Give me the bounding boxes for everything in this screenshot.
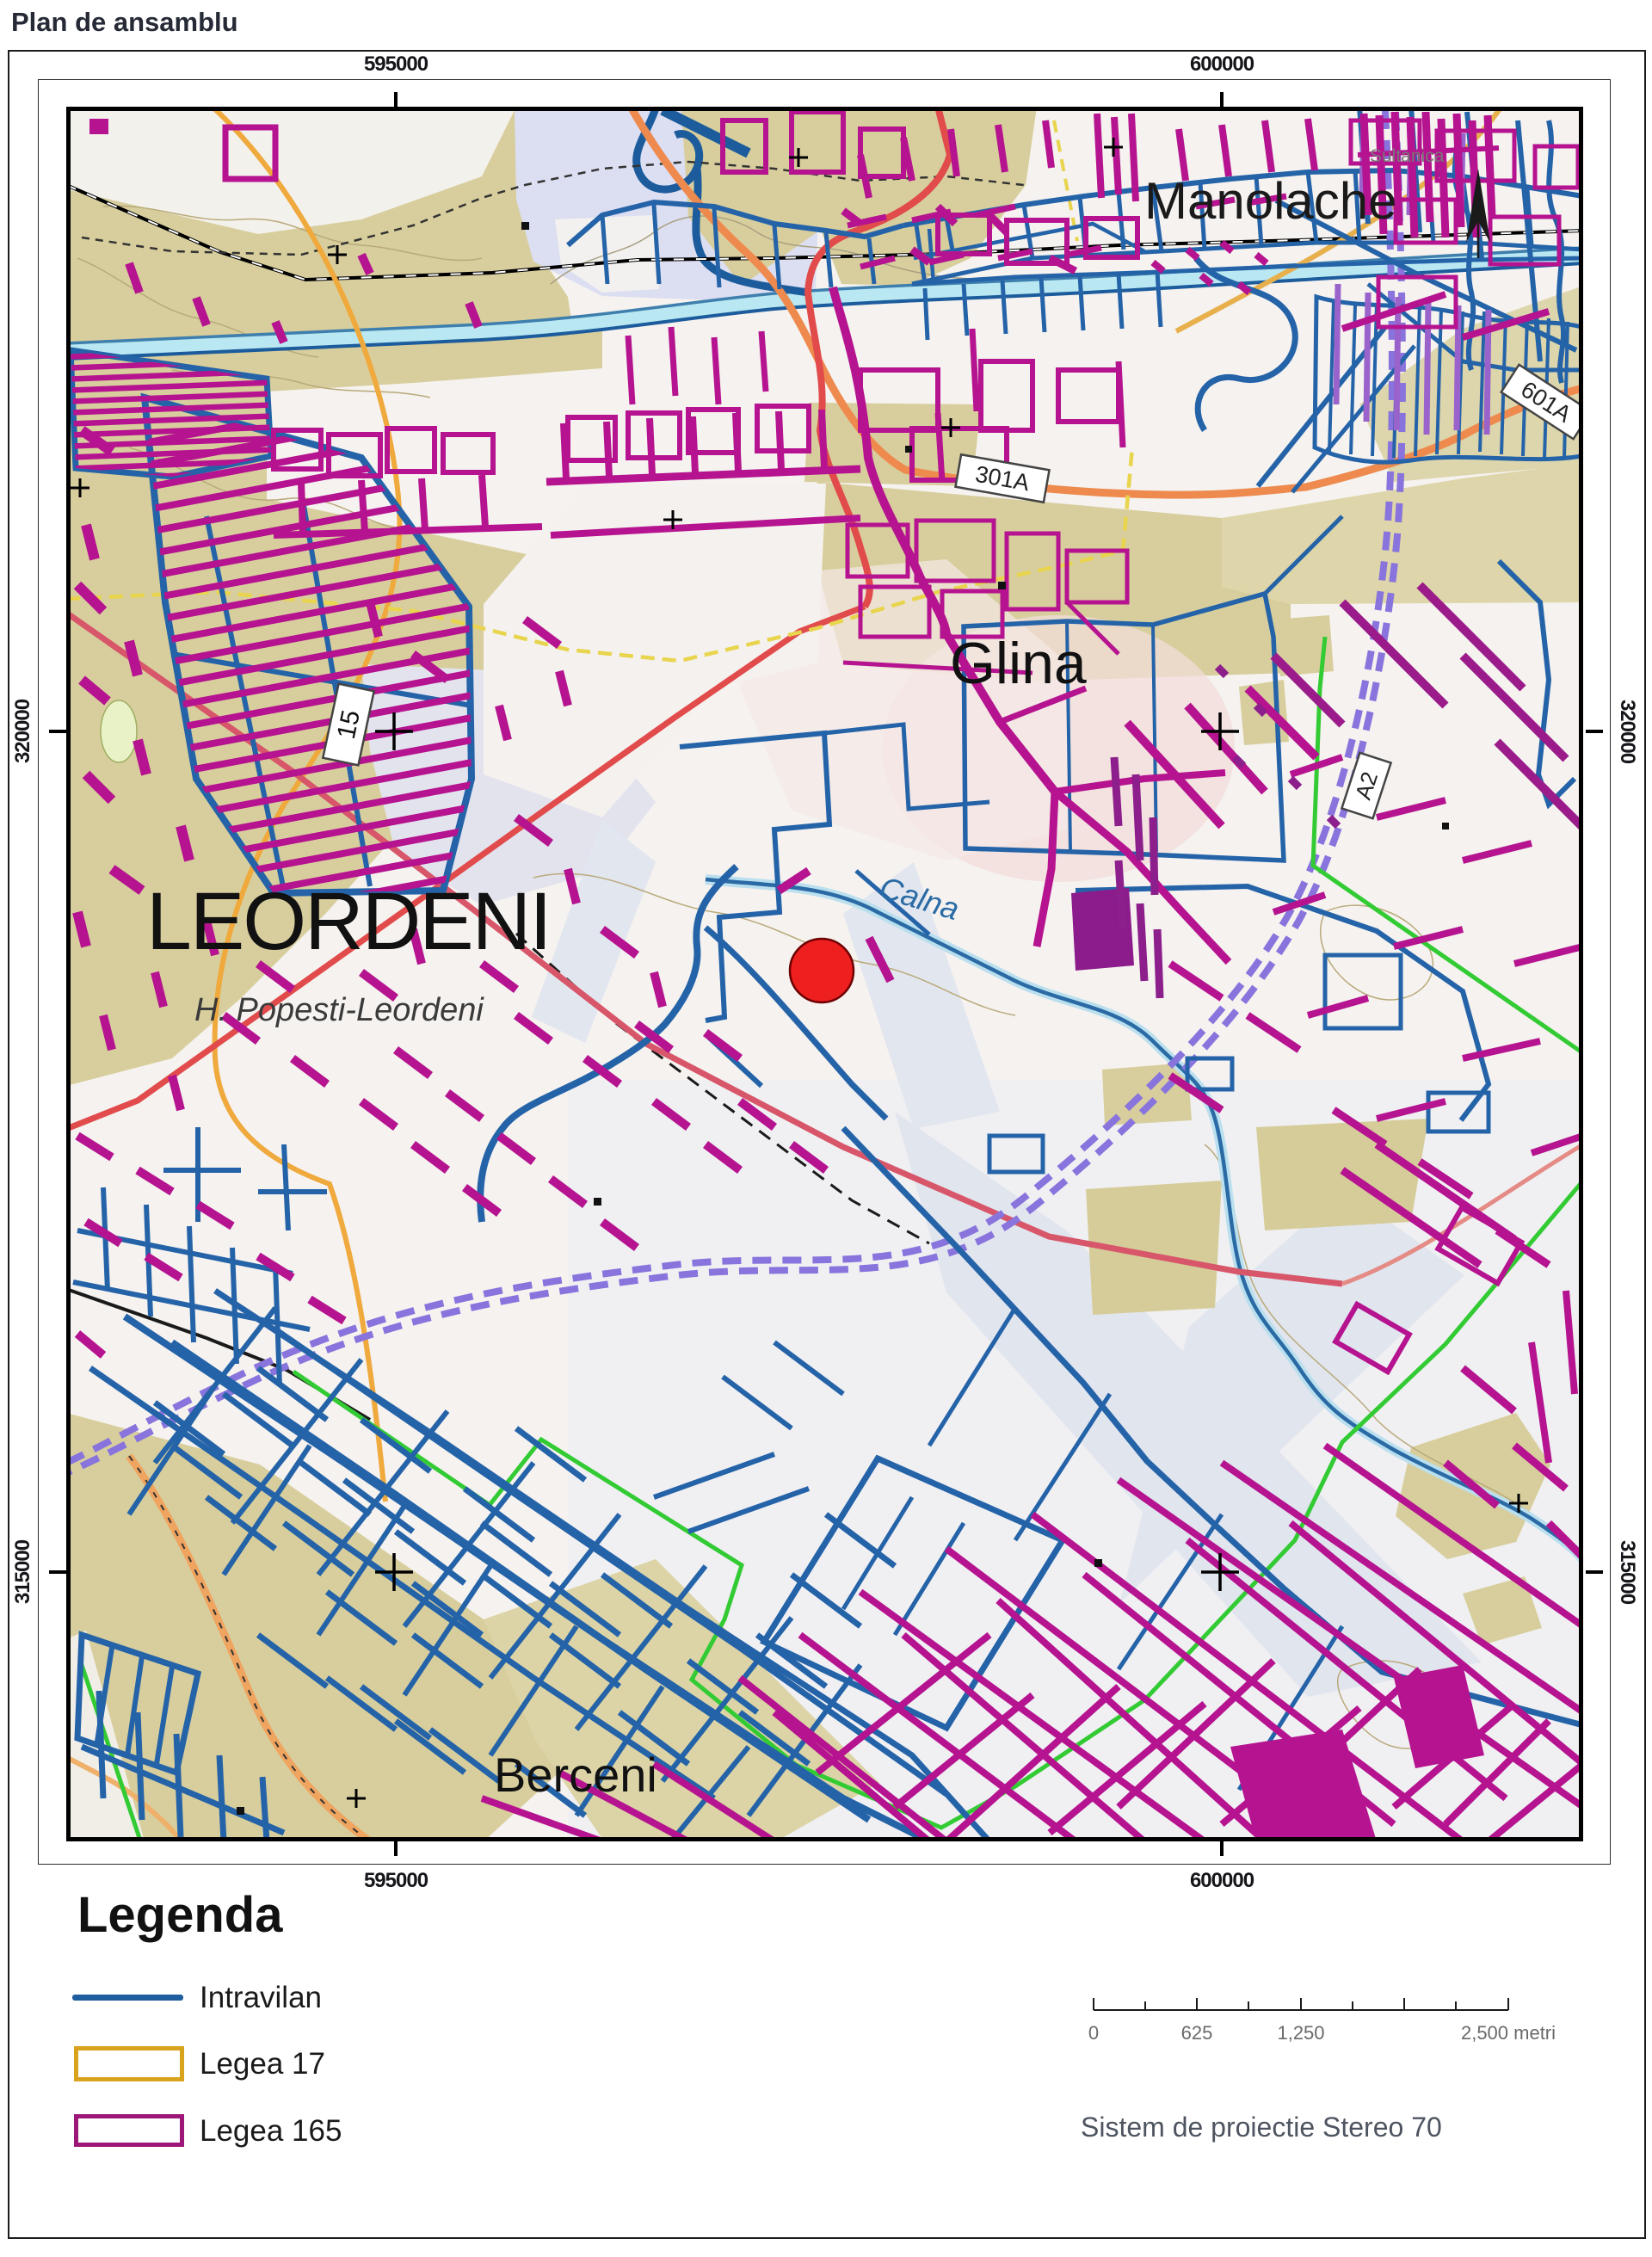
svg-text:LEORDENI: LEORDENI [146,876,551,967]
svg-text:Glina: Glina [950,631,1087,696]
svg-text:H. Popesti-Leordeni: H. Popesti-Leordeni [194,992,484,1028]
svg-text:Sultanica: Sultanica [1370,146,1445,166]
svg-text:0: 0 [1088,2022,1099,2044]
svg-text:15: 15 [332,707,366,742]
svg-text:2,500 metri: 2,500 metri [1461,2022,1556,2044]
svg-text:625: 625 [1181,2022,1213,2044]
svg-text:Berceni: Berceni [494,1748,657,1802]
svg-text:Manolache: Manolache [1144,172,1397,230]
svg-text:1,250: 1,250 [1277,2022,1324,2044]
